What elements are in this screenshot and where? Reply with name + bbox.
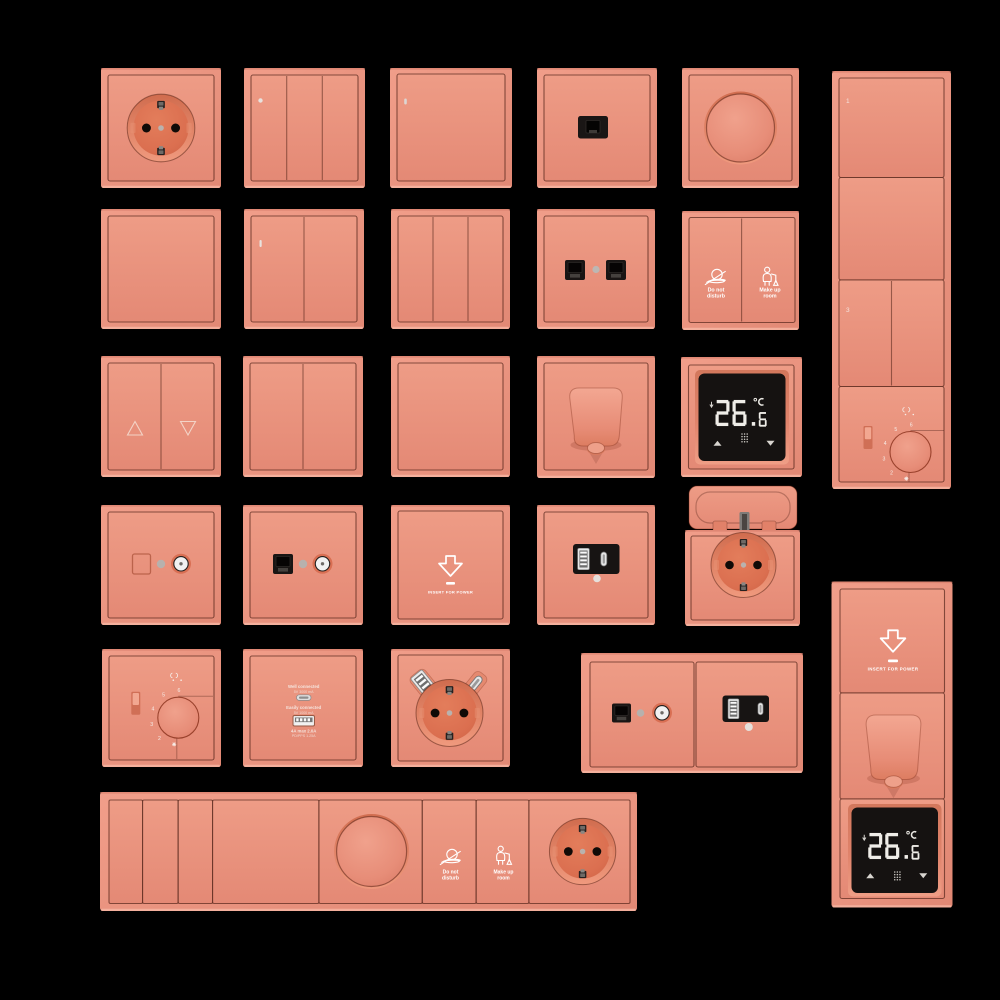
svg-text:5V 3000 mA: 5V 3000 mA bbox=[294, 690, 314, 694]
svg-text:4: 4 bbox=[884, 441, 887, 447]
svg-text:Well connected: Well connected bbox=[288, 684, 320, 689]
svg-text:3: 3 bbox=[882, 456, 885, 462]
svg-text:6: 6 bbox=[910, 422, 913, 428]
svg-text:2: 2 bbox=[890, 470, 893, 476]
svg-text:4A max 2.0A: 4A max 2.0A bbox=[291, 729, 316, 734]
svg-text:4: 4 bbox=[152, 707, 155, 713]
svg-text:5: 5 bbox=[162, 693, 165, 699]
svg-text:1: 1 bbox=[846, 98, 850, 105]
svg-text:3: 3 bbox=[150, 722, 153, 728]
svg-text:INSERT FOR POWER: INSERT FOR POWER bbox=[428, 590, 473, 595]
svg-text:disturb: disturb bbox=[707, 294, 726, 300]
svg-text:6: 6 bbox=[178, 688, 181, 694]
svg-text:disturb: disturb bbox=[442, 875, 459, 881]
svg-text:3: 3 bbox=[846, 307, 850, 314]
svg-text:room: room bbox=[497, 875, 510, 881]
svg-text:5V 1000 mA: 5V 1000 mA bbox=[294, 711, 314, 715]
svg-text:5: 5 bbox=[894, 427, 897, 433]
svg-text:room: room bbox=[763, 294, 777, 300]
svg-text:2: 2 bbox=[158, 736, 161, 742]
svg-text:Easily connected: Easily connected bbox=[286, 705, 321, 710]
svg-text:INSERT FOR POWER: INSERT FOR POWER bbox=[868, 667, 919, 672]
svg-text:PD/PPS 1.25A: PD/PPS 1.25A bbox=[292, 734, 316, 738]
